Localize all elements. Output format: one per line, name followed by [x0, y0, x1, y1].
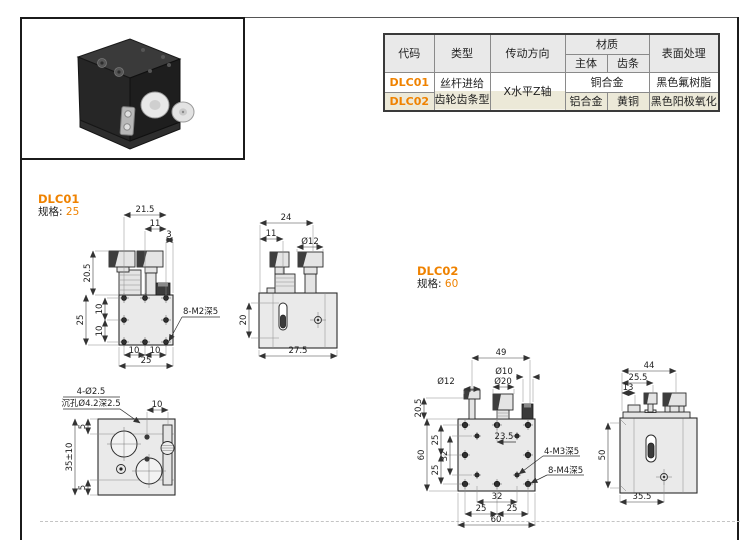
dim-label: 25: [431, 465, 441, 476]
hole-callout: 沉孔Ø4.2深2.5: [61, 398, 120, 409]
dim-label: 50: [598, 450, 608, 461]
row-dlc01-material: 铜合金: [565, 72, 649, 92]
type-line-2: 齿轮齿条型: [435, 91, 490, 107]
dim-label: 20.5: [414, 399, 424, 418]
header-surface: 表面处理: [649, 34, 719, 72]
row-dlc01-code: DLC01: [384, 72, 434, 92]
hole-callout: 8-M2深5: [183, 307, 218, 317]
dim-label: 25: [76, 315, 86, 326]
header-direction: 传动方向: [490, 34, 565, 72]
dim-label: 25: [476, 504, 487, 514]
row-dlc01-surface: 黑色氟树脂: [649, 72, 719, 92]
dlc01-front-geometry: [109, 251, 173, 347]
dim-label: 60: [417, 450, 427, 461]
dim-label: 25: [141, 356, 152, 366]
header-material-rack: 齿条: [607, 54, 649, 72]
dlc02-heading: DLC02 规格: 60: [417, 264, 458, 292]
hole-callout: 4-M3深5: [544, 447, 579, 457]
header-material-body: 主体: [565, 54, 607, 72]
row-dlc02-surface: 黑色阳极氧化: [649, 92, 719, 111]
dlc02-spec-value: 60: [445, 278, 458, 290]
header-type: 类型: [434, 34, 490, 72]
dim-label: 20.5: [83, 264, 93, 283]
dlc02-spec-label: 规格:: [417, 278, 442, 290]
dim-label: 11: [266, 229, 277, 239]
dlc01-side-view: 24 11 Ø12 20 27.5: [237, 208, 367, 363]
dim-label: 35±10: [65, 443, 75, 472]
product-photo-frame: [20, 17, 245, 160]
dim-label: 44: [644, 361, 655, 371]
dim-label: 13: [623, 383, 634, 393]
mount-bracket: [120, 107, 135, 136]
dim-label: 35.5: [633, 492, 652, 502]
row-dlc02-code: DLC02: [384, 92, 434, 111]
dim-label: Ø10: [495, 366, 513, 377]
dim-label: 23.5: [495, 432, 514, 442]
dlc01-bottom-geometry: [98, 419, 175, 495]
header-code: 代码: [384, 34, 434, 72]
type-cell: 丝杆进给 齿轮齿条型: [434, 72, 490, 111]
dim-label: 20: [239, 315, 249, 326]
dim-label: 3: [166, 230, 171, 240]
dim-label: 10: [95, 326, 105, 337]
dim-label: Ø20: [494, 376, 512, 387]
dim-label: 60: [491, 515, 502, 525]
type-line-1: 丝杆进给: [435, 75, 490, 91]
product-photo: [22, 19, 243, 158]
dlc02-side-view: 44 25.5 13 50 35.5: [595, 355, 743, 515]
dim-label: 21.5: [136, 205, 155, 215]
dlc01-bottom-view: 4-Ø2.5 沉孔Ø4.2深2.5 10 5 35±10 5: [35, 385, 210, 525]
dim-label: 10: [152, 400, 163, 410]
dim-label: 5: [78, 485, 88, 490]
dlc01-front-view: 21.5 11 3 20.5 25 10 10 10 10 25 8-M2深5: [62, 203, 242, 373]
dim-label: Ø12: [301, 236, 319, 247]
dim-label: 25.5: [629, 373, 648, 383]
dlc01-spec-label: 规格:: [38, 206, 63, 218]
dim-label: 11: [150, 219, 161, 229]
dlc02-front-dimensions: 49 Ø10 Ø20 Ø12 20.5 60 25 32 25 23.5 4-M…: [414, 348, 584, 526]
dim-label: 32: [440, 451, 450, 462]
dim-label: 10: [95, 304, 105, 315]
dim-label: 27.5: [289, 346, 308, 356]
dim-label: 32: [492, 492, 503, 502]
row-dlc02-material-rack: 黄铜: [607, 92, 649, 111]
dlc02-front-view: 49 Ø10 Ø20 Ø12 20.5 60 25 32 25 23.5 4-M…: [412, 342, 607, 532]
dlc02-code: DLC02: [417, 264, 458, 278]
hole-callout: 8-M4深5: [548, 466, 583, 476]
spec-table: 代码 类型 传动方向 材质 表面处理 主体 齿条 DLC01 丝杆进给 齿轮齿条…: [383, 33, 720, 112]
catalog-page: 代码 类型 传动方向 材质 表面处理 主体 齿条 DLC01 丝杆进给 齿轮齿条…: [0, 0, 750, 540]
dim-label: 25: [431, 435, 441, 446]
hole-callout: 4-Ø2.5: [77, 386, 106, 397]
dlc02-side-geometry: [620, 393, 697, 493]
direction-cell: X水平Z轴: [490, 72, 565, 111]
header-material: 材质: [565, 34, 649, 54]
dim-label: Ø12: [437, 376, 455, 387]
dim-label: 25: [507, 504, 518, 514]
dlc01-side-geometry: [259, 252, 337, 348]
dim-label: 10: [129, 346, 140, 356]
dim-label: 5: [78, 424, 88, 429]
row-dlc02-material-body: 铝合金: [565, 92, 607, 111]
dim-label: 49: [496, 348, 507, 358]
dim-label: 24: [281, 213, 292, 223]
dim-label: 10: [150, 346, 161, 356]
